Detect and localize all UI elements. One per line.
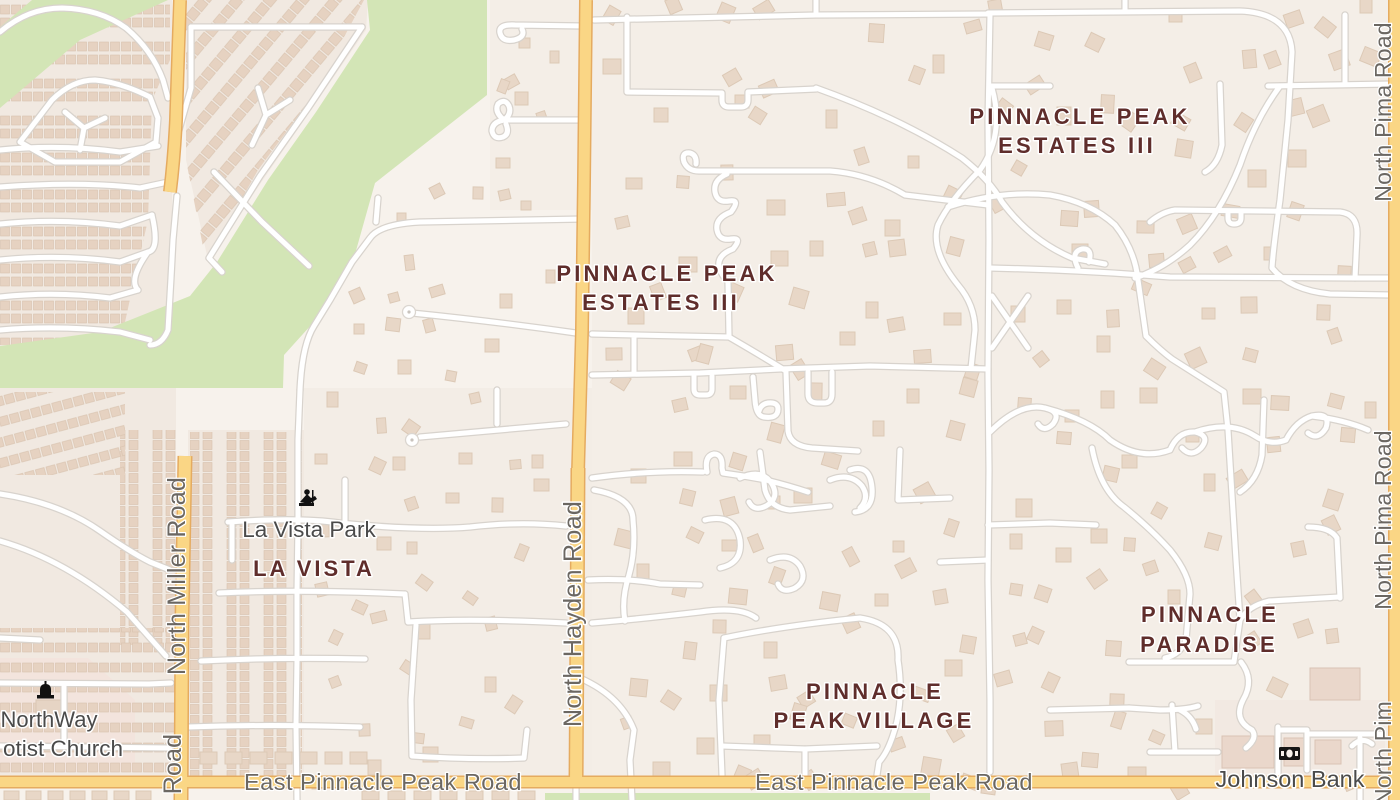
svg-text:Road: Road — [159, 734, 187, 795]
svg-text:Johnson Bank: Johnson Bank — [1216, 766, 1365, 792]
svg-text:PINNACLE PEAK: PINNACLE PEAK — [969, 104, 1190, 129]
svg-text:East Pinnacle Peak Road: East Pinnacle Peak Road — [244, 769, 522, 795]
svg-text:North Hayden Road: North Hayden Road — [559, 501, 587, 727]
svg-text:PINNACLE: PINNACLE — [806, 679, 944, 704]
svg-text:PARADISE: PARADISE — [1140, 632, 1278, 657]
svg-text:PEAK VILLAGE: PEAK VILLAGE — [774, 708, 975, 733]
svg-text:NorthWay: NorthWay — [1, 707, 98, 732]
svg-text:PINNACLE: PINNACLE — [1141, 602, 1279, 627]
svg-text:North Pim: North Pim — [1370, 701, 1396, 800]
svg-text:ESTATES III: ESTATES III — [998, 133, 1156, 158]
svg-text:East Pinnacle Peak Road: East Pinnacle Peak Road — [755, 769, 1033, 795]
svg-text:LA VISTA: LA VISTA — [253, 556, 375, 581]
svg-text:North Miller Road: North Miller Road — [163, 477, 191, 675]
svg-text:ESTATES III: ESTATES III — [582, 290, 740, 315]
svg-text:North Pima Road: North Pima Road — [1370, 430, 1396, 609]
svg-text:otist Church: otist Church — [3, 736, 123, 761]
svg-text:PINNACLE PEAK: PINNACLE PEAK — [556, 261, 777, 286]
svg-text:La Vista Park: La Vista Park — [242, 517, 376, 542]
svg-text:North Pima Road: North Pima Road — [1370, 22, 1396, 201]
